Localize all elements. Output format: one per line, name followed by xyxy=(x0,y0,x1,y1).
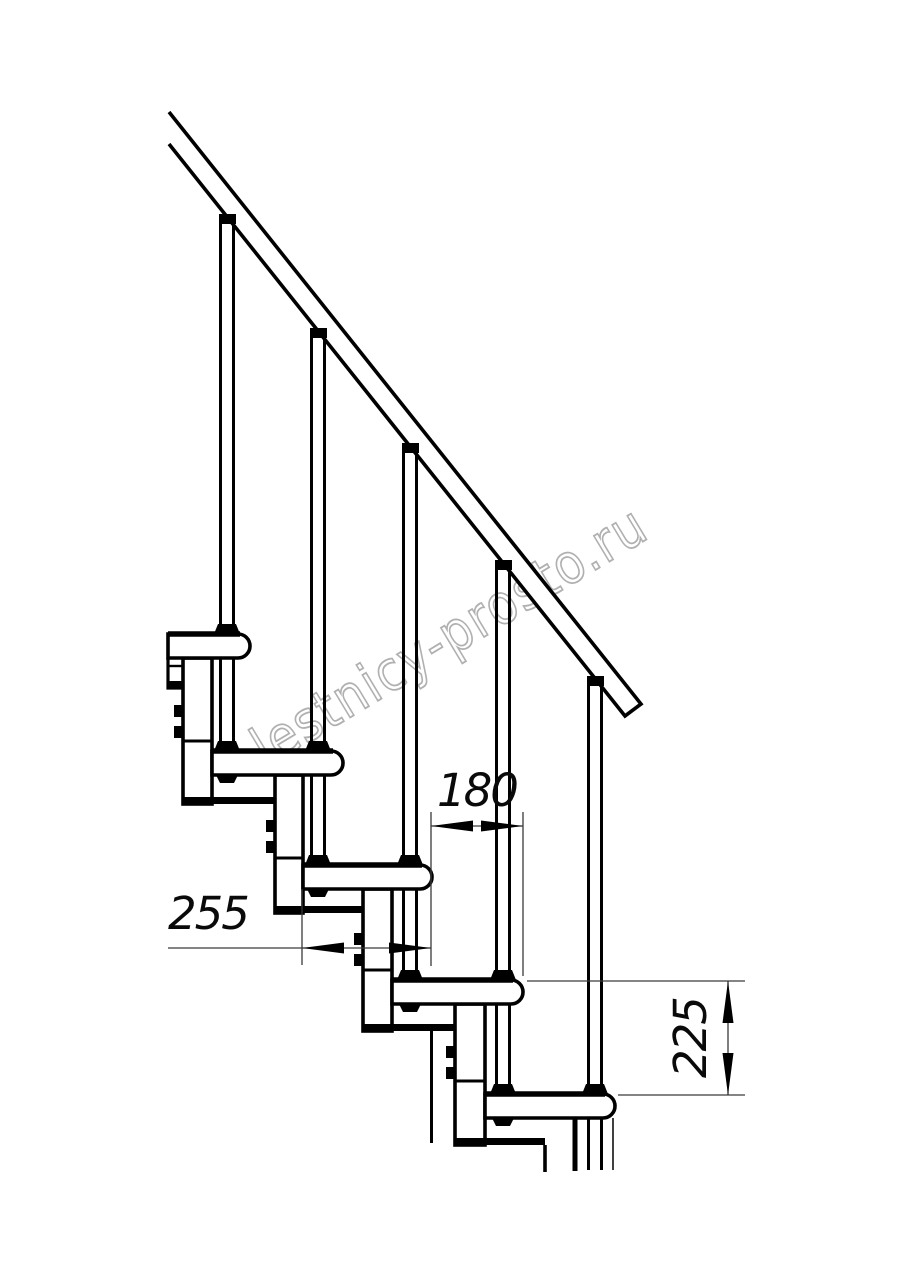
support-arm-2 xyxy=(275,906,363,913)
tread-5 xyxy=(485,1094,615,1118)
baluster-3-cap xyxy=(402,443,419,453)
collar-icon xyxy=(490,970,516,980)
dimension-180-label: 180 xyxy=(437,764,517,817)
collar-icon xyxy=(305,855,331,865)
collar-icon xyxy=(214,624,240,634)
bolt-icon xyxy=(446,1067,456,1079)
technical-drawing-page: lestnicy-prosto.ru xyxy=(0,0,914,1280)
support-arm-1 xyxy=(183,797,275,804)
support-column-1 xyxy=(183,658,212,804)
support-arm-4 xyxy=(455,1138,545,1145)
baluster-5-cap xyxy=(587,676,604,686)
collar-icon xyxy=(305,741,331,751)
support-arm-3 xyxy=(363,1024,455,1031)
bolt-icon xyxy=(174,705,184,717)
bolt-icon xyxy=(446,1046,456,1058)
collar-icon xyxy=(490,1084,516,1094)
collar-icon xyxy=(214,741,240,751)
support-column-2 xyxy=(275,775,303,913)
support-column-4 xyxy=(455,1004,485,1145)
dimension-255-label: 255 xyxy=(168,887,248,940)
dimension-225-label: 225 xyxy=(664,998,717,1078)
bolt-icon xyxy=(174,726,184,738)
collar-icon xyxy=(397,970,423,980)
bolt-icon xyxy=(354,954,364,966)
support-column-3 xyxy=(363,889,392,1031)
tread-2 xyxy=(212,751,343,775)
collar-icon xyxy=(582,1084,608,1094)
tread-3 xyxy=(303,865,432,889)
collar-icon xyxy=(397,855,423,865)
staircase-technical-drawing: lestnicy-prosto.ru xyxy=(0,0,914,1280)
bolt-icon xyxy=(354,933,364,945)
tread-1 xyxy=(168,634,250,658)
bolt-icon xyxy=(266,841,276,853)
baluster-2-cap xyxy=(310,328,327,338)
baluster-4-cap xyxy=(495,560,512,570)
baluster-1-cap xyxy=(219,214,236,224)
tread-4 xyxy=(392,980,523,1004)
bolt-icon xyxy=(266,820,276,832)
